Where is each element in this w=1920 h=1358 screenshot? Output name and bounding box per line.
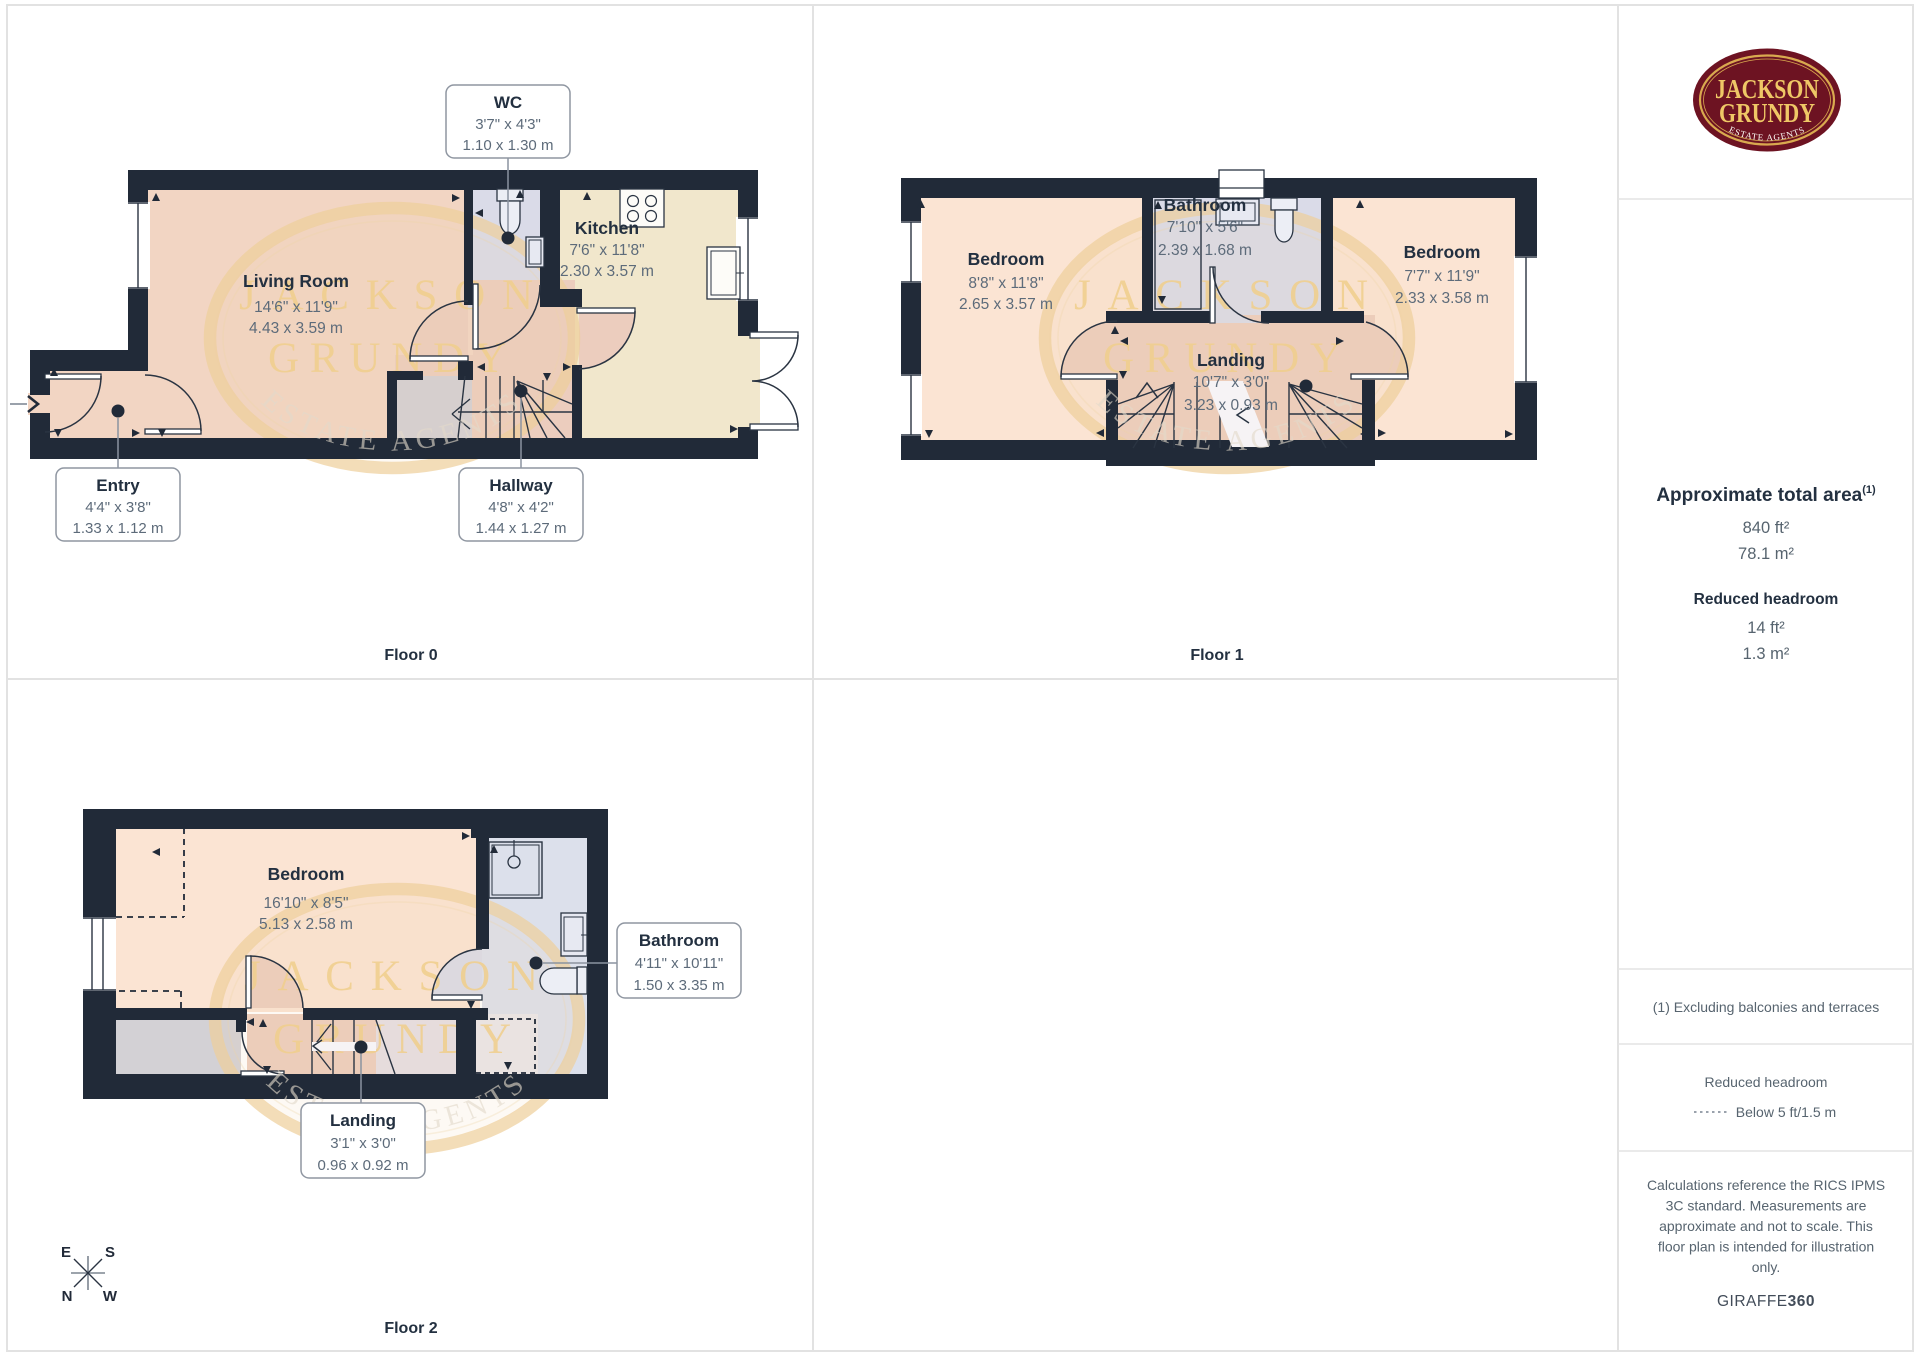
svg-text:Bedroom: Bedroom — [268, 864, 345, 884]
svg-text:8'8" x 11'8": 8'8" x 11'8" — [968, 275, 1043, 292]
svg-text:S: S — [105, 1244, 115, 1261]
svg-text:Floor 0: Floor 0 — [384, 647, 437, 664]
svg-text:Landing: Landing — [330, 1111, 396, 1130]
svg-text:Bathroom: Bathroom — [1164, 195, 1247, 215]
svg-text:3C standard. Measurements are: 3C standard. Measurements are — [1666, 1198, 1867, 1214]
svg-text:GRUNDY: GRUNDY — [273, 1016, 521, 1063]
svg-text:1.44 x 1.27 m: 1.44 x 1.27 m — [476, 520, 567, 537]
svg-text:Hallway: Hallway — [489, 476, 553, 495]
svg-text:1.50 x 3.35 m: 1.50 x 3.35 m — [634, 977, 725, 994]
svg-text:2.39 x 1.68 m: 2.39 x 1.68 m — [1158, 242, 1252, 259]
svg-text:Kitchen: Kitchen — [575, 218, 639, 238]
svg-text:3'7" x 4'3": 3'7" x 4'3" — [475, 116, 541, 133]
svg-text:Bedroom: Bedroom — [1404, 242, 1481, 262]
svg-text:Calculations reference the RIC: Calculations reference the RICS IPMS — [1647, 1177, 1885, 1193]
svg-text:Landing: Landing — [1197, 350, 1265, 370]
svg-text:7'6" x 11'8": 7'6" x 11'8" — [569, 242, 644, 259]
svg-text:4.43 x 3.59 m: 4.43 x 3.59 m — [249, 320, 343, 337]
svg-text:GRUNDY: GRUNDY — [1719, 98, 1815, 128]
svg-text:7'10" x 5'6": 7'10" x 5'6" — [1167, 219, 1243, 236]
svg-text:approximate and not to scale.: approximate and not to scale. This — [1659, 1218, 1873, 1234]
svg-text:4'8" x 4'2": 4'8" x 4'2" — [488, 499, 554, 516]
svg-text:Below 5 ft/1.5 m: Below 5 ft/1.5 m — [1736, 1104, 1836, 1120]
svg-text:4'11" x 10'11": 4'11" x 10'11" — [635, 955, 723, 972]
svg-text:Reduced headroom: Reduced headroom — [1694, 591, 1839, 608]
svg-text:7'7" x 11'9": 7'7" x 11'9" — [1404, 268, 1479, 285]
svg-text:14 ft²: 14 ft² — [1747, 619, 1785, 637]
svg-text:1.3 m²: 1.3 m² — [1743, 645, 1790, 663]
svg-text:only.: only. — [1752, 1259, 1781, 1275]
svg-text:16'10" x 8'5": 16'10" x 8'5" — [263, 895, 348, 912]
svg-text:W: W — [103, 1288, 118, 1305]
svg-text:3.23 x 0.93 m: 3.23 x 0.93 m — [1184, 397, 1278, 414]
svg-text:0.96 x 0.92 m: 0.96 x 0.92 m — [318, 1157, 409, 1174]
svg-text:3'1" x 3'0": 3'1" x 3'0" — [330, 1135, 396, 1152]
svg-text:78.1 m²: 78.1 m² — [1738, 545, 1794, 563]
svg-text:2.65 x 3.57 m: 2.65 x 3.57 m — [959, 296, 1053, 313]
svg-text:Reduced headroom: Reduced headroom — [1705, 1074, 1828, 1090]
svg-text:GIRAFFE360: GIRAFFE360 — [1717, 1293, 1815, 1310]
svg-text:2.33 x 3.58 m: 2.33 x 3.58 m — [1395, 290, 1489, 307]
svg-text:Approximate total area(1): Approximate total area(1) — [1656, 484, 1876, 506]
svg-text:840 ft²: 840 ft² — [1743, 519, 1790, 537]
svg-text:5.13 x 2.58 m: 5.13 x 2.58 m — [259, 916, 353, 933]
svg-text:10'7" x 3'0": 10'7" x 3'0" — [1193, 374, 1269, 391]
svg-text:Floor 2: Floor 2 — [384, 1320, 437, 1337]
svg-text:14'6" x 11'9": 14'6" x 11'9" — [254, 299, 338, 316]
svg-text:Living Room: Living Room — [243, 271, 349, 291]
svg-text:1.33 x 1.12 m: 1.33 x 1.12 m — [73, 520, 164, 537]
svg-text:Bedroom: Bedroom — [968, 249, 1045, 269]
svg-text:WC: WC — [494, 93, 522, 112]
svg-text:1.10 x 1.30 m: 1.10 x 1.30 m — [463, 137, 554, 154]
svg-text:2.30 x 3.57 m: 2.30 x 3.57 m — [560, 263, 654, 280]
svg-text:E: E — [61, 1244, 71, 1261]
svg-text:4'4" x 3'8": 4'4" x 3'8" — [85, 499, 151, 516]
svg-text:Bathroom: Bathroom — [639, 931, 719, 950]
svg-text:(1) Excluding balconies and te: (1) Excluding balconies and terraces — [1653, 999, 1879, 1015]
svg-text:Floor 1: Floor 1 — [1190, 647, 1243, 664]
svg-text:N: N — [62, 1288, 73, 1305]
svg-text:Entry: Entry — [96, 476, 140, 495]
svg-text:floor plan is intended for ill: floor plan is intended for illustration — [1658, 1239, 1874, 1255]
